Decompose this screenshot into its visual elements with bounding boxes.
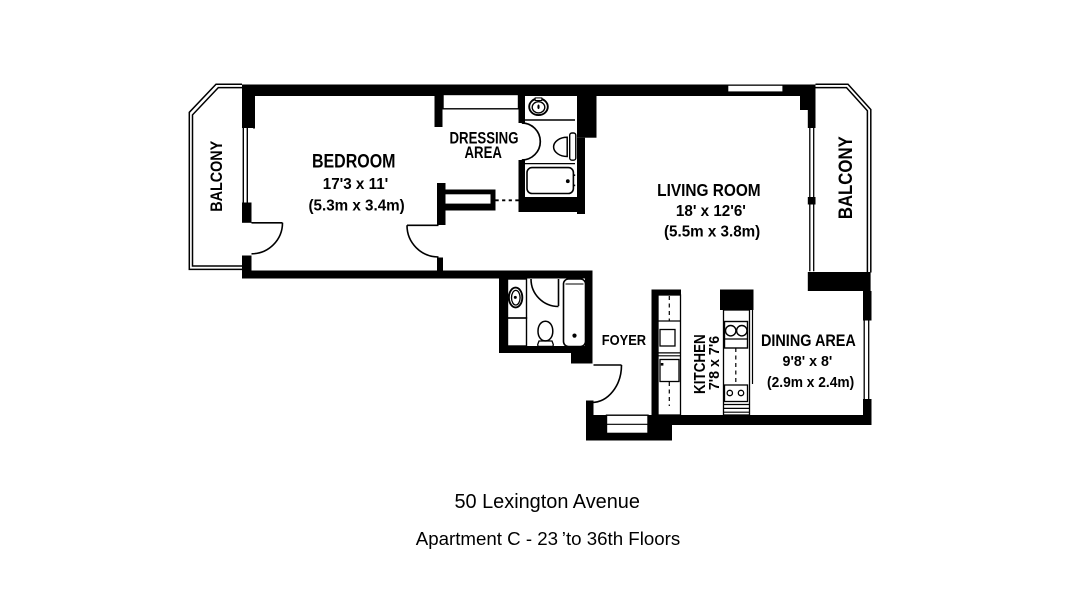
svg-text:DINING AREA: DINING AREA (761, 332, 856, 350)
svg-text:BALCONY: BALCONY (208, 140, 226, 211)
svg-text:Apartment C - 23 ’to 36th Floo: Apartment C - 23 ’to 36th Floors (416, 528, 680, 549)
svg-text:LIVING ROOM: LIVING ROOM (657, 181, 760, 200)
svg-text:BALCONY: BALCONY (835, 136, 856, 219)
svg-text:(5.5m x 3.8m): (5.5m x 3.8m) (664, 223, 760, 240)
svg-text:18' x 12'6': 18' x 12'6' (676, 202, 746, 219)
svg-text:7'8 x 7'6: 7'8 x 7'6 (707, 336, 723, 390)
svg-text:(5.3m x 3.4m): (5.3m x 3.4m) (308, 197, 404, 214)
svg-text:50 Lexington Avenue: 50 Lexington Avenue (454, 491, 639, 513)
svg-text:(2.9m x 2.4m): (2.9m x 2.4m) (767, 374, 854, 390)
svg-text:AREA: AREA (465, 143, 503, 162)
svg-text:17'3 x 11': 17'3 x 11' (323, 176, 389, 193)
svg-text:FOYER: FOYER (602, 332, 646, 348)
svg-text:BEDROOM: BEDROOM (312, 150, 395, 172)
svg-text:9'8' x 8': 9'8' x 8' (783, 354, 833, 370)
